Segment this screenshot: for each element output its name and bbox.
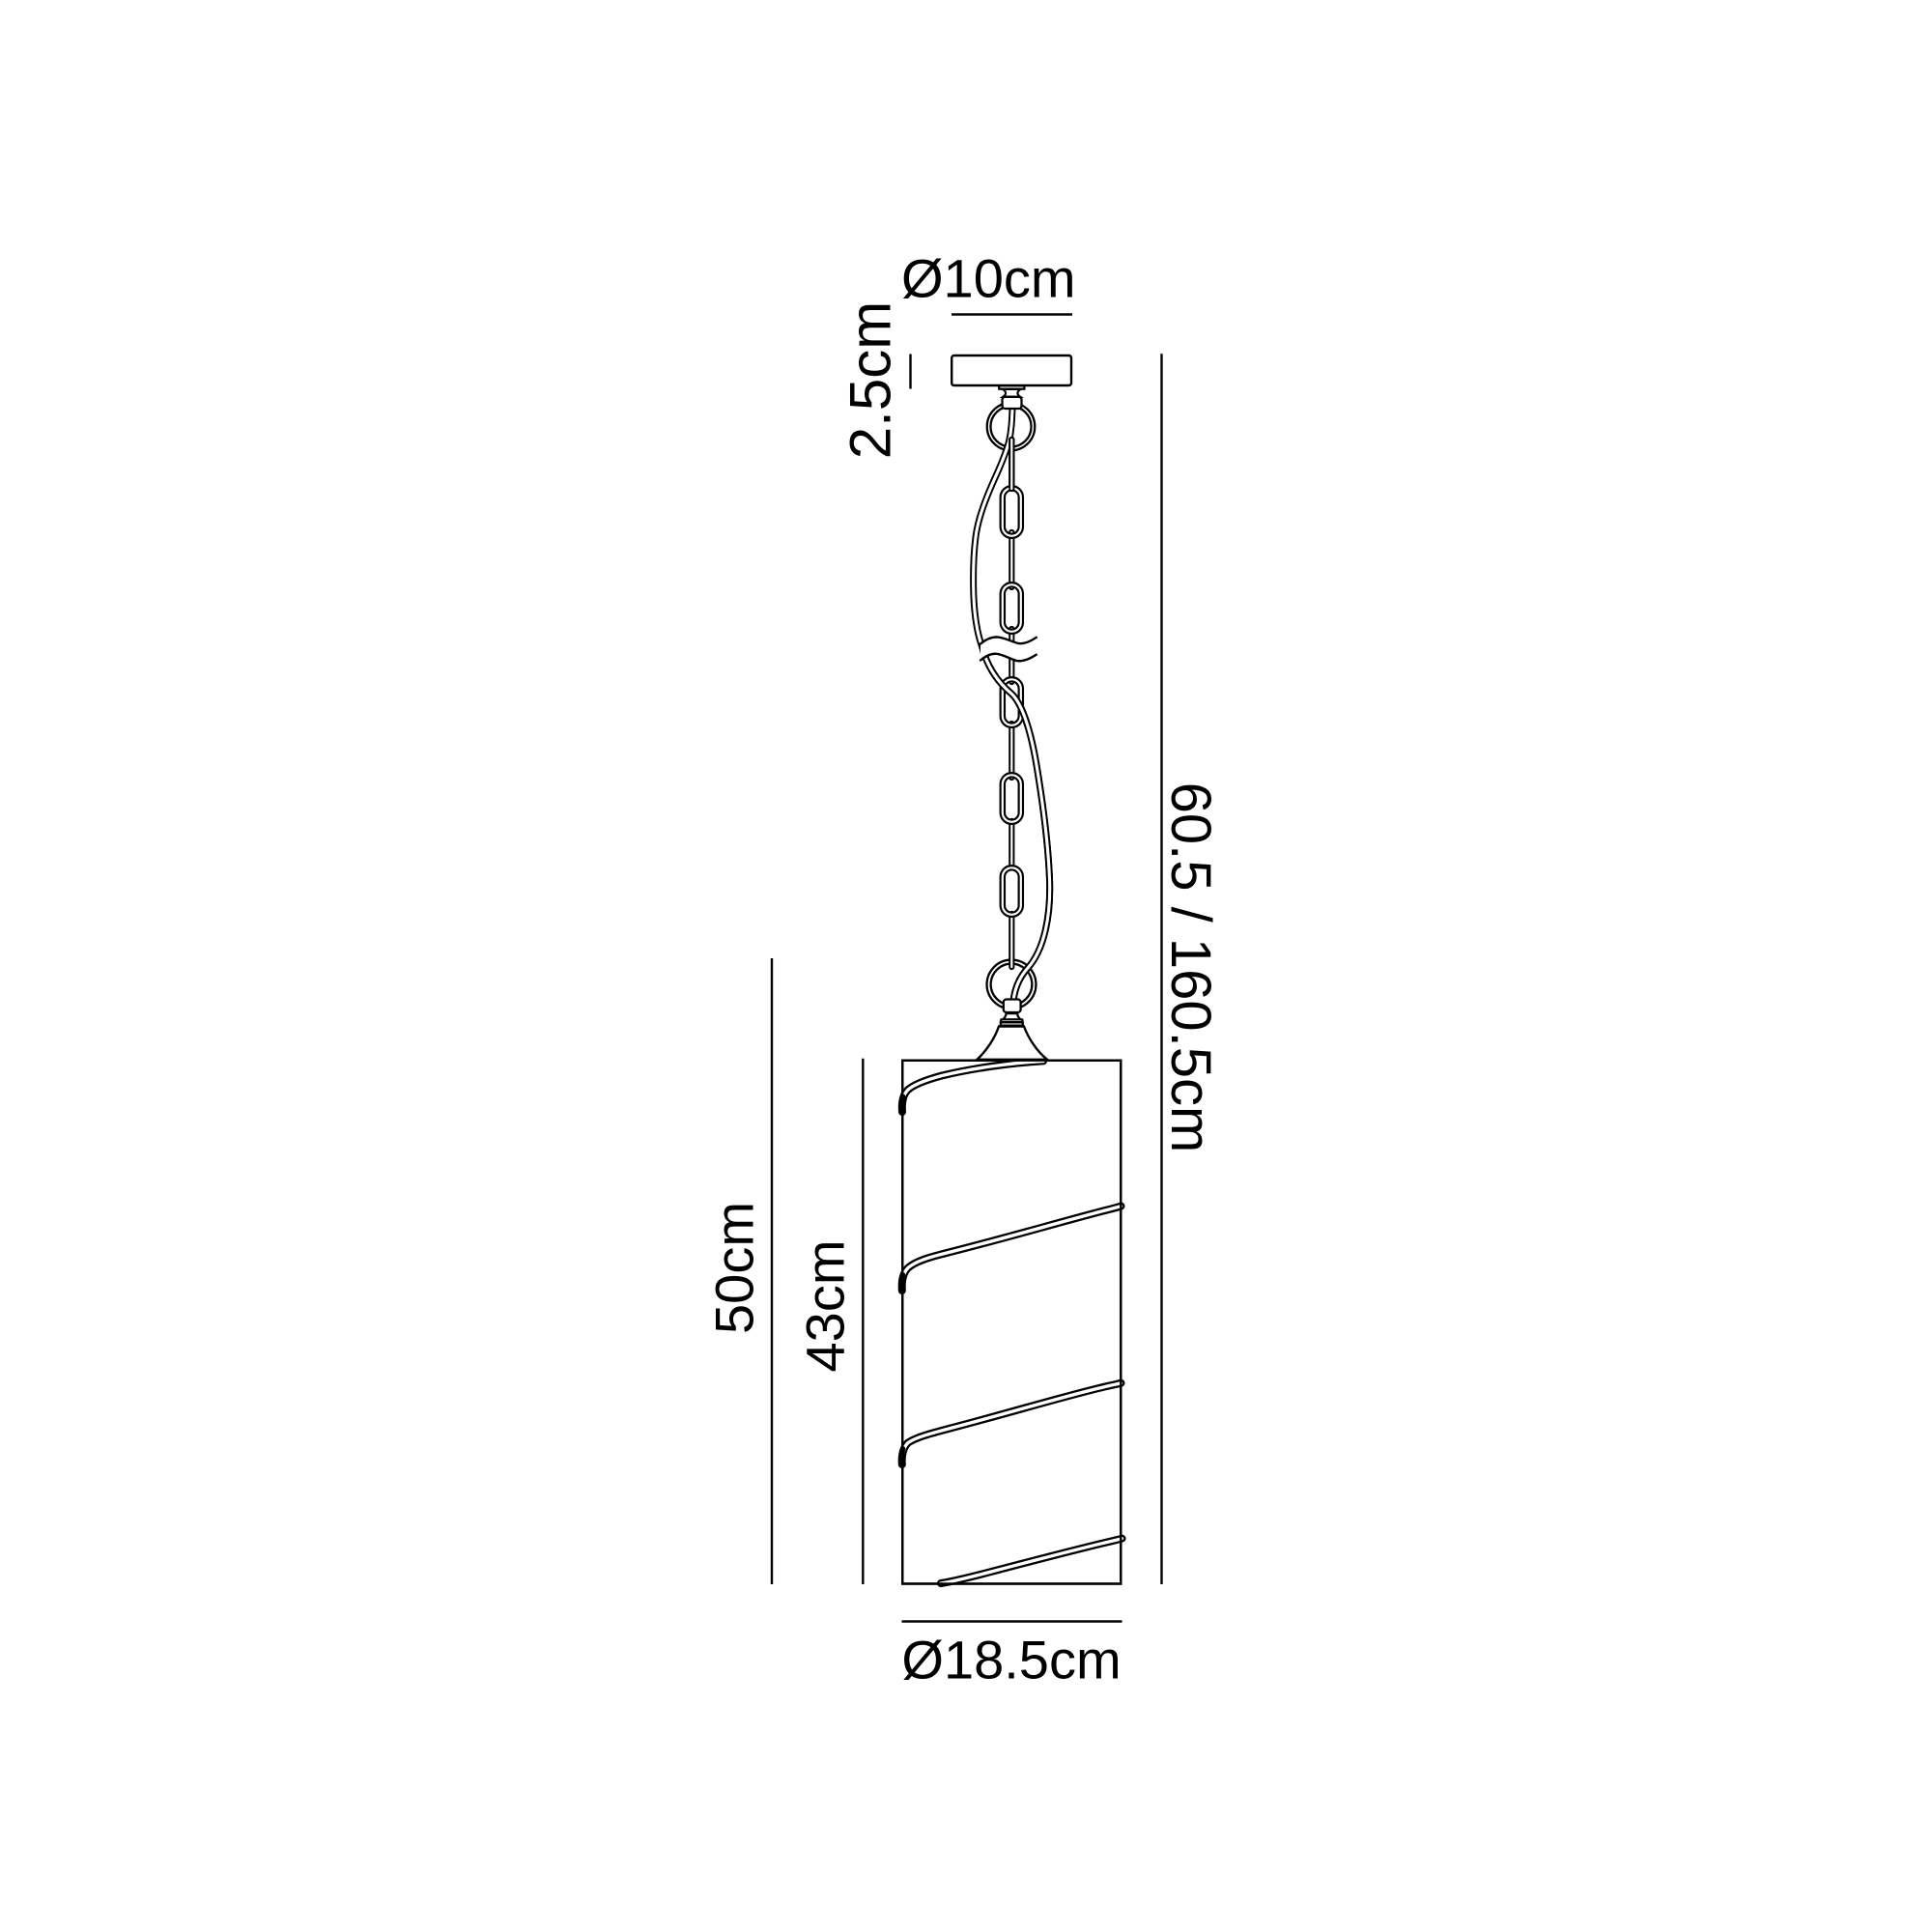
svg-text:Ø18.5cm: Ø18.5cm [901,1630,1121,1690]
svg-text:2.5cm: 2.5cm [838,301,903,459]
svg-text:50cm: 50cm [704,1202,765,1334]
svg-text:Ø10cm: Ø10cm [901,248,1076,309]
svg-text:60.5 / 160.5cm: 60.5 / 160.5cm [1159,782,1222,1153]
svg-text:43cm: 43cm [795,1240,856,1373]
